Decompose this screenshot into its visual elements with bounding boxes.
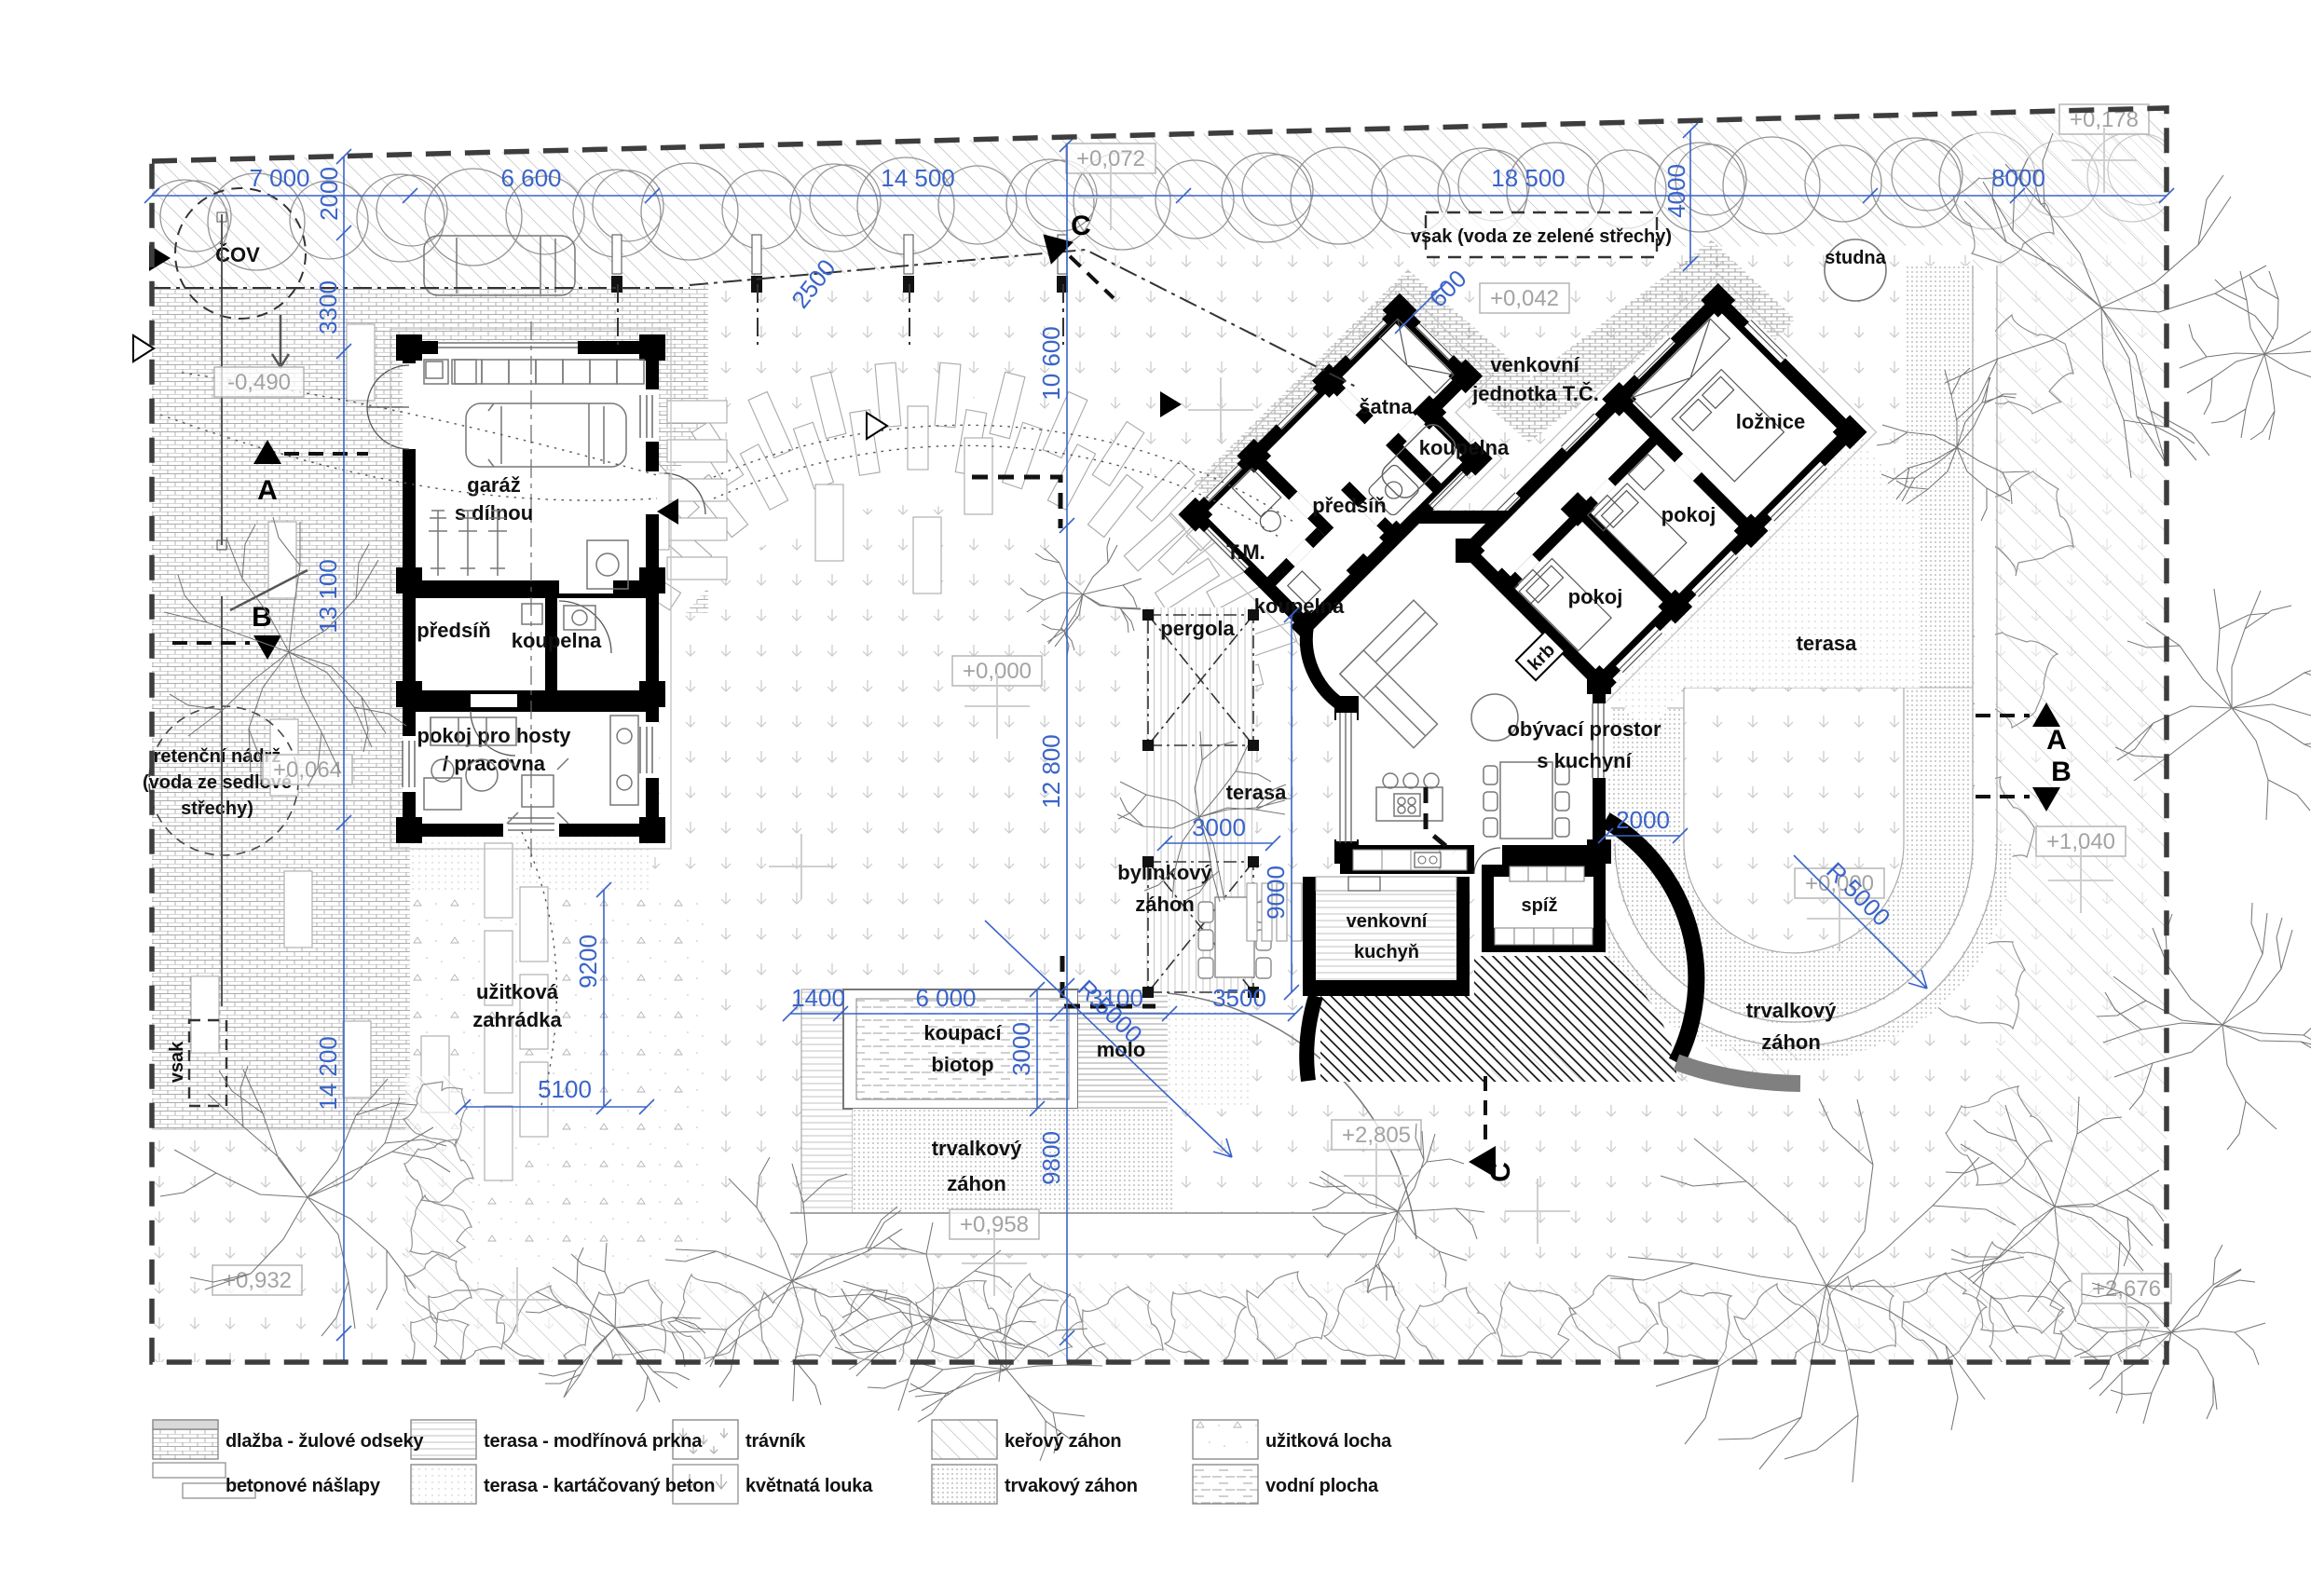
svg-text:12 800: 12 800 <box>1037 734 1065 809</box>
svg-text:molo: molo <box>1097 1038 1146 1061</box>
svg-text:pergola: pergola <box>1160 617 1235 640</box>
svg-text:5100: 5100 <box>538 1075 592 1103</box>
svg-text:terasa: terasa <box>1797 632 1858 655</box>
svg-text:keřový záhon: keřový záhon <box>1005 1431 1121 1452</box>
svg-text:koupací: koupací <box>923 1021 1002 1044</box>
svg-text:trvalkový: trvalkový <box>1746 999 1837 1022</box>
svg-text:C: C <box>1485 1162 1516 1182</box>
svg-text:biotop: biotop <box>931 1053 993 1076</box>
svg-text:ložnice: ložnice <box>1736 410 1806 433</box>
svg-text:s kuchyní: s kuchyní <box>1537 749 1632 772</box>
svg-text:obývací prostor: obývací prostor <box>1507 717 1661 741</box>
svg-text:9800: 9800 <box>1037 1131 1065 1185</box>
svg-text:střechy): střechy) <box>181 798 253 819</box>
svg-text:pokoj: pokoj <box>1661 503 1716 526</box>
svg-text:18 500: 18 500 <box>1491 164 1566 192</box>
svg-text:šatna: šatna <box>1359 395 1413 418</box>
svg-text:koupelna: koupelna <box>1419 436 1510 459</box>
svg-text:1400: 1400 <box>791 984 845 1012</box>
svg-text:3000: 3000 <box>1007 1022 1035 1076</box>
svg-text:dlažba - žulové odseky: dlažba - žulové odseky <box>226 1431 424 1452</box>
svg-text:C: C <box>1071 211 1091 241</box>
svg-text:3500: 3500 <box>1212 984 1266 1012</box>
svg-text:trvalkový: trvalkový <box>932 1137 1022 1160</box>
svg-text:bylinkový: bylinkový <box>1117 861 1212 884</box>
svg-text:předsíň: předsíň <box>1312 494 1386 517</box>
svg-text:vsak (voda ze zelené střechy): vsak (voda ze zelené střechy) <box>1411 226 1672 247</box>
svg-text:zahrádka: zahrádka <box>472 1008 562 1031</box>
svg-text:-0,490: -0,490 <box>227 370 291 395</box>
svg-text:záhon: záhon <box>947 1172 1006 1195</box>
svg-text:pokoj pro hosty: pokoj pro hosty <box>417 724 572 747</box>
svg-text:pokoj: pokoj <box>1568 585 1623 608</box>
svg-text:koupelna: koupelna <box>1254 594 1345 618</box>
svg-text:2000: 2000 <box>1616 806 1670 834</box>
svg-text:A: A <box>2046 725 2067 756</box>
svg-text:9200: 9200 <box>574 934 602 989</box>
svg-text:8000: 8000 <box>1991 164 2045 192</box>
svg-text:+0,042: +0,042 <box>1490 286 1559 311</box>
svg-text:terasa - modřínová prkna: terasa - modřínová prkna <box>484 1431 703 1452</box>
svg-text:/ pracovna: / pracovna <box>443 752 546 775</box>
svg-text:vsak: vsak <box>167 1041 187 1083</box>
svg-text:A: A <box>257 475 278 506</box>
svg-text:+0,064: +0,064 <box>273 757 342 783</box>
svg-text:10 600: 10 600 <box>1037 326 1065 401</box>
svg-text:terasa - kartáčovaný beton: terasa - kartáčovaný beton <box>484 1476 715 1496</box>
svg-text:venkovní: venkovní <box>1347 911 1429 932</box>
svg-text:jednotka T.Č.: jednotka T.Č. <box>1471 382 1599 405</box>
svg-text:2000: 2000 <box>315 167 343 221</box>
svg-text:předsíň: předsíň <box>417 619 490 642</box>
svg-text:B: B <box>2051 757 2072 787</box>
svg-text:venkovní: venkovní <box>1490 353 1579 376</box>
svg-text:trvakový záhon: trvakový záhon <box>1005 1476 1138 1496</box>
svg-text:koupelna: koupelna <box>512 629 602 652</box>
svg-text:studna: studna <box>1825 248 1886 268</box>
svg-text:užitková locha: užitková locha <box>1265 1431 1392 1452</box>
svg-text:květnatá louka: květnatá louka <box>745 1476 873 1496</box>
svg-text:záhon: záhon <box>1135 893 1195 916</box>
svg-text:záhon: záhon <box>1761 1030 1821 1054</box>
svg-text:6 000: 6 000 <box>915 984 976 1012</box>
svg-text:+0,932: +0,932 <box>223 1268 292 1293</box>
svg-text:vodní plocha: vodní plocha <box>1265 1476 1379 1496</box>
svg-text:trávník: trávník <box>745 1431 806 1452</box>
svg-text:4000: 4000 <box>1662 164 1690 218</box>
svg-text:s dílnou: s dílnou <box>455 501 533 525</box>
svg-text:14 500: 14 500 <box>881 164 955 192</box>
svg-text:14 200: 14 200 <box>314 1036 342 1111</box>
svg-text:betonové nášlapy: betonové nášlapy <box>226 1476 381 1496</box>
svg-text:užitková: užitková <box>476 980 559 1003</box>
svg-text:3300: 3300 <box>314 280 342 334</box>
svg-text:3000: 3000 <box>1192 813 1246 841</box>
svg-text:T.M.: T.M. <box>1226 540 1265 564</box>
svg-text:7 000: 7 000 <box>249 164 309 192</box>
svg-text:9000: 9000 <box>1262 866 1290 920</box>
svg-text:spíž: spíž <box>1522 895 1558 916</box>
svg-text:6 600: 6 600 <box>500 164 561 192</box>
svg-text:retenční nádrž: retenční nádrž <box>154 746 281 767</box>
svg-text:13 100: 13 100 <box>314 559 342 634</box>
svg-text:B: B <box>252 602 272 633</box>
svg-text:terasa: terasa <box>1226 781 1288 804</box>
svg-text:kuchyň: kuchyň <box>1354 942 1419 962</box>
